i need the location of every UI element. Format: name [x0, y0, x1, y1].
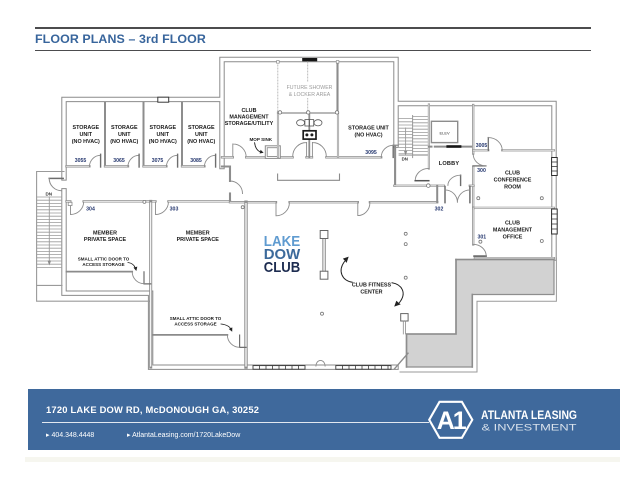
svg-text:(NO HVAC): (NO HVAC): [72, 139, 100, 145]
svg-text:3065: 3065: [113, 158, 125, 164]
svg-text:ACCESS STORAGE: ACCESS STORAGE: [174, 322, 216, 327]
svg-text:CLUB FITNESS: CLUB FITNESS: [352, 282, 392, 288]
svg-text:3005: 3005: [476, 143, 488, 149]
svg-text:& INVESTMENT: & INVESTMENT: [482, 423, 577, 434]
svg-text:MEMBER: MEMBER: [186, 230, 210, 236]
svg-text:304: 304: [86, 206, 95, 212]
svg-text:OFFICE: OFFICE: [503, 235, 523, 241]
svg-text:300: 300: [477, 168, 486, 174]
svg-text:& LOCKER AREA: & LOCKER AREA: [289, 92, 331, 98]
svg-text:303: 303: [170, 206, 179, 212]
svg-text:DN: DN: [45, 192, 52, 197]
svg-text:A1: A1: [437, 407, 467, 435]
svg-text:STORAGE: STORAGE: [188, 125, 215, 131]
svg-text:MEMBER: MEMBER: [93, 230, 117, 236]
svg-text:PRIVATE SPACE: PRIVATE SPACE: [177, 237, 220, 243]
svg-text:CLUB: CLUB: [264, 259, 301, 276]
svg-text:CLUB: CLUB: [505, 221, 520, 227]
svg-text:(NO HVAC): (NO HVAC): [149, 139, 177, 145]
svg-text:STORAGE: STORAGE: [150, 125, 177, 131]
svg-text:MANAGEMENT: MANAGEMENT: [229, 114, 269, 120]
svg-text:STORAGE/UTILITY: STORAGE/UTILITY: [225, 121, 274, 127]
svg-text:FUTURE SHOWER: FUTURE SHOWER: [287, 85, 333, 91]
svg-text:(NO HVAC): (NO HVAC): [354, 133, 382, 139]
svg-text:3085: 3085: [190, 158, 202, 164]
svg-text:ELEV: ELEV: [439, 130, 450, 135]
svg-text:302: 302: [435, 206, 444, 212]
svg-text:LOBBY: LOBBY: [439, 161, 460, 167]
svg-text:MANAGEMENT: MANAGEMENT: [493, 228, 533, 234]
svg-text:3095: 3095: [365, 150, 377, 156]
svg-text:UNIT: UNIT: [118, 132, 131, 138]
svg-text:3075: 3075: [152, 158, 164, 164]
svg-text:301: 301: [477, 234, 486, 240]
svg-text:PRIVATE SPACE: PRIVATE SPACE: [84, 237, 127, 243]
svg-text:ATLANTA LEASING: ATLANTA LEASING: [481, 408, 577, 422]
svg-text:STORAGE: STORAGE: [73, 125, 100, 131]
svg-text:ACCESS STORAGE: ACCESS STORAGE: [82, 262, 124, 267]
svg-text:STORAGE UNIT: STORAGE UNIT: [348, 126, 389, 132]
svg-text:SMALL ATTIC DOOR TO: SMALL ATTIC DOOR TO: [78, 256, 130, 261]
svg-text:UNIT: UNIT: [195, 132, 208, 138]
svg-text:ROOM: ROOM: [504, 185, 521, 191]
svg-text:UNIT: UNIT: [157, 132, 170, 138]
svg-text:CLUB: CLUB: [505, 171, 520, 177]
svg-text:(NO HVAC): (NO HVAC): [187, 139, 215, 145]
svg-text:STORAGE: STORAGE: [111, 125, 138, 131]
svg-text:MOP SINK: MOP SINK: [249, 137, 272, 142]
svg-text:(NO HVAC): (NO HVAC): [110, 139, 138, 145]
svg-text:3055: 3055: [75, 158, 87, 164]
svg-text:SMALL ATTIC DOOR TO: SMALL ATTIC DOOR TO: [170, 316, 222, 321]
svg-text:CONFERENCE: CONFERENCE: [494, 178, 532, 184]
svg-text:CENTER: CENTER: [360, 290, 382, 296]
svg-text:DN: DN: [402, 157, 408, 162]
svg-text:UNIT: UNIT: [80, 132, 93, 138]
svg-text:CLUB: CLUB: [242, 108, 257, 114]
